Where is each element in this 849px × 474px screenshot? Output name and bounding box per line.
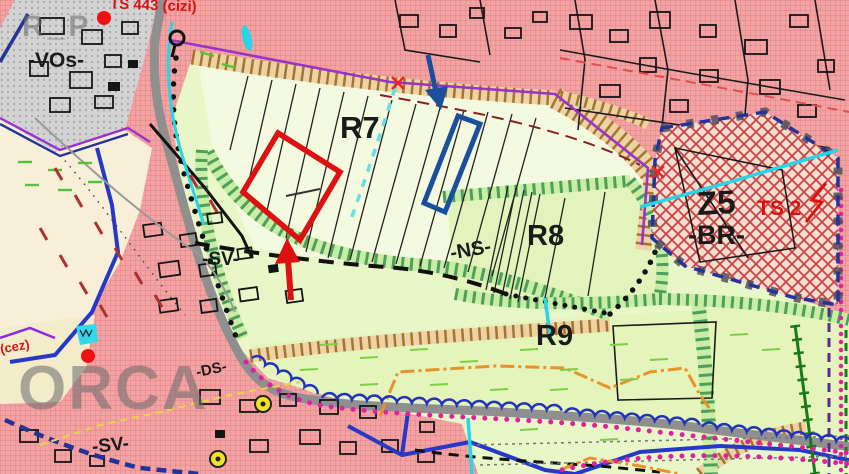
label-sv-bottom: -SV- (91, 434, 130, 457)
label-z5: Z5 (696, 185, 736, 220)
watermark-orca: ORCA (18, 358, 209, 420)
label-r9: R9 (536, 322, 573, 351)
label-br: -BR- (688, 222, 745, 249)
label-vos: -VOs- (28, 50, 84, 71)
red-dot-ts443 (97, 11, 111, 25)
label-r7: R7 (340, 112, 380, 143)
watermark-corner: R_P (22, 12, 92, 42)
label-ts443: TS 443 (cizi) (110, 0, 197, 15)
label-r8: R8 (527, 222, 564, 251)
label-sv-mid: -SV- (202, 250, 239, 269)
zoning-map[interactable]: R_P TS 443 (cizi) -VOs- R7 R8 R9 Z5 -BR-… (0, 0, 849, 474)
label-ts2: TS 2 (757, 198, 801, 219)
